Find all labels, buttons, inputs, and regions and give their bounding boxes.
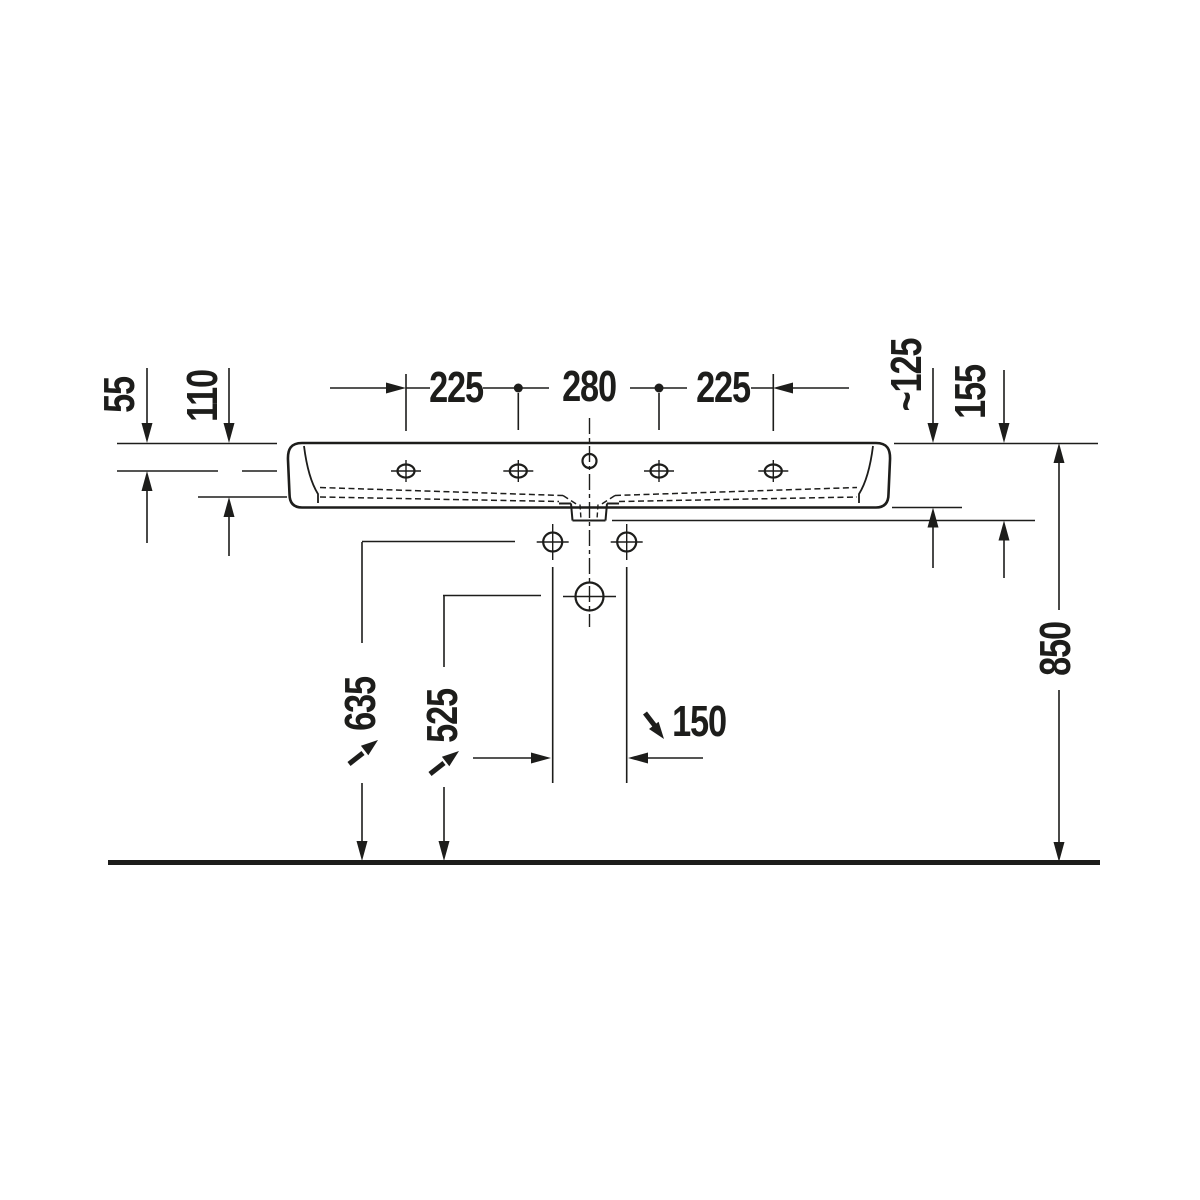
arrow-left-icon	[628, 753, 648, 764]
arrow-down-icon	[357, 841, 368, 861]
dim-label-225-left: 225	[429, 366, 483, 410]
bottom-dimensions	[349, 542, 703, 861]
faucet-hole-3	[644, 460, 674, 482]
arrow-left-icon	[773, 383, 793, 394]
dimension-dot	[514, 384, 523, 393]
arrow-right-icon	[531, 753, 551, 764]
dim-label-155: 155	[949, 365, 993, 419]
technical-drawing-page: 225 280 225 55 110 ~125 155 850 635 525 …	[0, 0, 1200, 1200]
faucet-hole-1	[391, 460, 421, 482]
arrow-up-icon	[928, 508, 939, 528]
fixing-hole-left	[537, 524, 569, 560]
dimension-drawing-svg	[0, 0, 1200, 1200]
dim-label-850: 850	[1034, 622, 1078, 676]
dim-label-225-right: 225	[696, 366, 750, 410]
faucet-hole-4	[758, 460, 788, 482]
faucet-hole-2	[503, 460, 533, 482]
arrow-up-icon	[1054, 443, 1065, 463]
leader-arrow-150	[645, 713, 664, 739]
arrow-up-icon	[999, 521, 1010, 541]
arrow-down-icon	[928, 423, 939, 443]
arrow-up-icon	[224, 497, 235, 517]
arrow-down-icon	[142, 423, 153, 443]
arrow-down-icon	[439, 841, 450, 861]
arrow-down-icon	[999, 423, 1010, 443]
dim-label-125: ~125	[885, 339, 929, 412]
fixing-hole-right	[611, 524, 643, 560]
dim-label-110: 110	[181, 370, 225, 422]
leader-arrow-525	[430, 751, 459, 774]
arrow-right-icon	[386, 383, 406, 394]
basin-hidden-lines	[320, 488, 857, 505]
dim-label-525: 525	[421, 689, 465, 743]
arrow-down-icon	[1054, 842, 1065, 862]
leader-arrow-635	[349, 740, 378, 764]
dim-label-55: 55	[98, 377, 142, 413]
arrow-down-icon	[224, 423, 235, 443]
dim-label-635: 635	[339, 677, 383, 731]
dimension-dot	[655, 384, 664, 393]
dim-label-150: 150	[672, 700, 726, 744]
reference-lines	[117, 444, 1098, 596]
basin-inner-edge-right	[859, 446, 873, 503]
arrow-up-icon	[142, 471, 153, 491]
dim-label-280: 280	[562, 365, 616, 409]
basin-inner-edge-left	[304, 446, 318, 503]
